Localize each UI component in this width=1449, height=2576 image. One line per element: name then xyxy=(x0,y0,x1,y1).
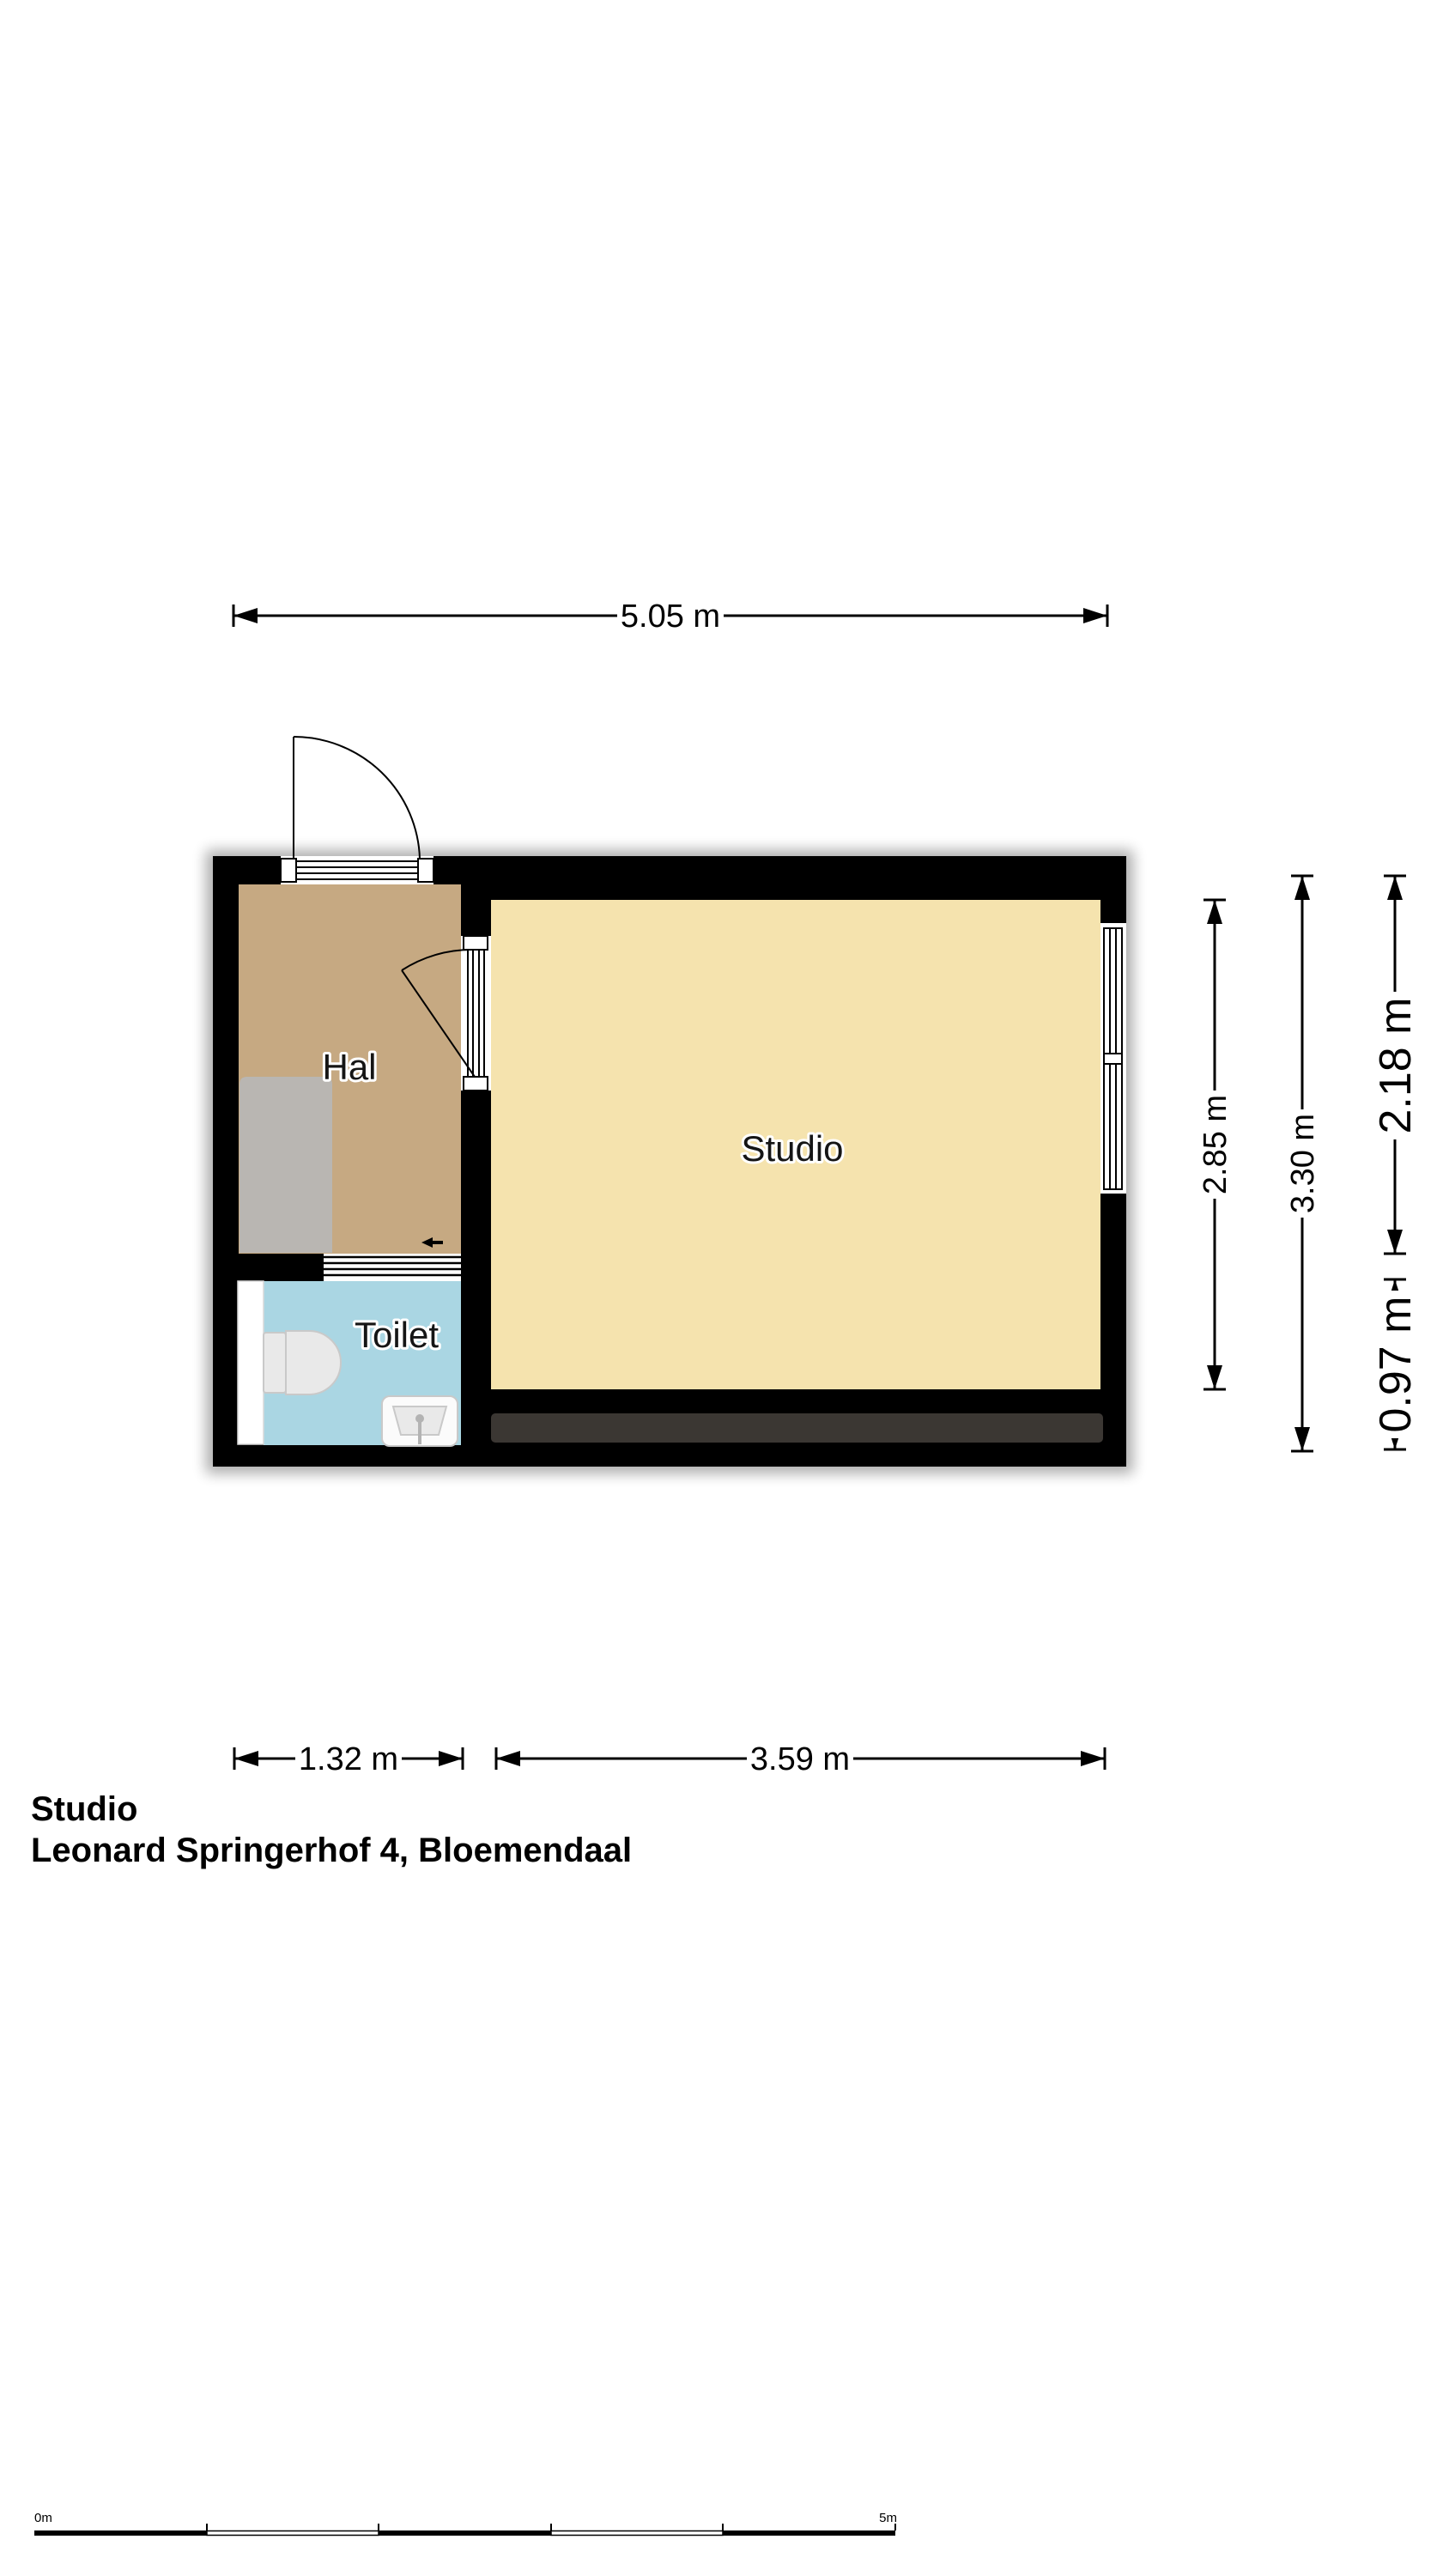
floorplan-canvas: Hal Studio Toilet 5.05 m 1.32 m xyxy=(0,0,1449,2576)
svg-text:0.97 m: 0.97 m xyxy=(1371,1297,1421,1433)
dim-height-window-bottom: 0.97 m xyxy=(1370,1279,1421,1449)
floor-plan: Hal Studio Toilet xyxy=(206,737,1133,1473)
entrance-door-jamb-right xyxy=(418,859,433,882)
interior-door-jamb-bottom xyxy=(464,1077,488,1091)
toilet-door-opening xyxy=(238,1281,264,1444)
svg-text:2.18 m: 2.18 m xyxy=(1371,998,1421,1134)
toilet-fixture xyxy=(264,1331,341,1394)
room-label-studio: Studio xyxy=(741,1128,843,1169)
scale-bar: 0m 5m xyxy=(34,2511,897,2536)
scale-start-label: 0m xyxy=(34,2511,52,2525)
interior-door-jamb-top xyxy=(464,936,488,950)
scale-segment-2 xyxy=(207,2531,379,2536)
svg-text:3.59 m: 3.59 m xyxy=(750,1741,850,1777)
room-label-toilet: Toilet xyxy=(355,1315,439,1355)
footer-title: Studio Leonard Springerhof 4, Bloemendaa… xyxy=(31,1790,632,1869)
sink xyxy=(382,1396,458,1446)
entrance-door-swing-arc xyxy=(294,737,420,859)
dim-width-total: 5.05 m xyxy=(233,598,1107,635)
scale-segment-3 xyxy=(379,2530,551,2536)
dim-height-total: 3.30 m xyxy=(1283,876,1321,1451)
svg-text:2.85 m: 2.85 m xyxy=(1197,1095,1234,1194)
dim-width-studio: 3.59 m xyxy=(496,1741,1105,1777)
threshold-hal-toilet xyxy=(324,1254,461,1281)
footer-line1: Studio xyxy=(31,1790,137,1828)
entrance-door xyxy=(281,737,433,884)
toilet-tank xyxy=(264,1333,286,1393)
svg-text:5.05 m: 5.05 m xyxy=(621,598,720,635)
studio-window xyxy=(1100,923,1126,1194)
floorplan-page: Hal Studio Toilet 5.05 m 1.32 m xyxy=(0,0,1449,2576)
dim-height-studio: 2.85 m xyxy=(1196,900,1234,1389)
dim-width-hal: 1.32 m xyxy=(234,1741,463,1777)
toilet-bowl xyxy=(286,1331,341,1394)
footer-line2: Leonard Springerhof 4, Bloemendaal xyxy=(31,1832,632,1869)
balcony-strip xyxy=(491,1413,1103,1443)
hal-appliance xyxy=(239,1077,332,1253)
scale-segment-5 xyxy=(723,2530,895,2536)
svg-text:3.30 m: 3.30 m xyxy=(1285,1114,1321,1213)
room-label-hal: Hal xyxy=(322,1047,376,1087)
svg-text:1.32 m: 1.32 m xyxy=(299,1741,398,1777)
entrance-door-jamb-left xyxy=(281,859,296,882)
scale-segment-1 xyxy=(34,2530,207,2536)
scale-end-label: 5m xyxy=(879,2511,897,2525)
scale-segment-4 xyxy=(551,2531,723,2536)
dim-height-window-top: 2.18 m xyxy=(1370,876,1421,1254)
